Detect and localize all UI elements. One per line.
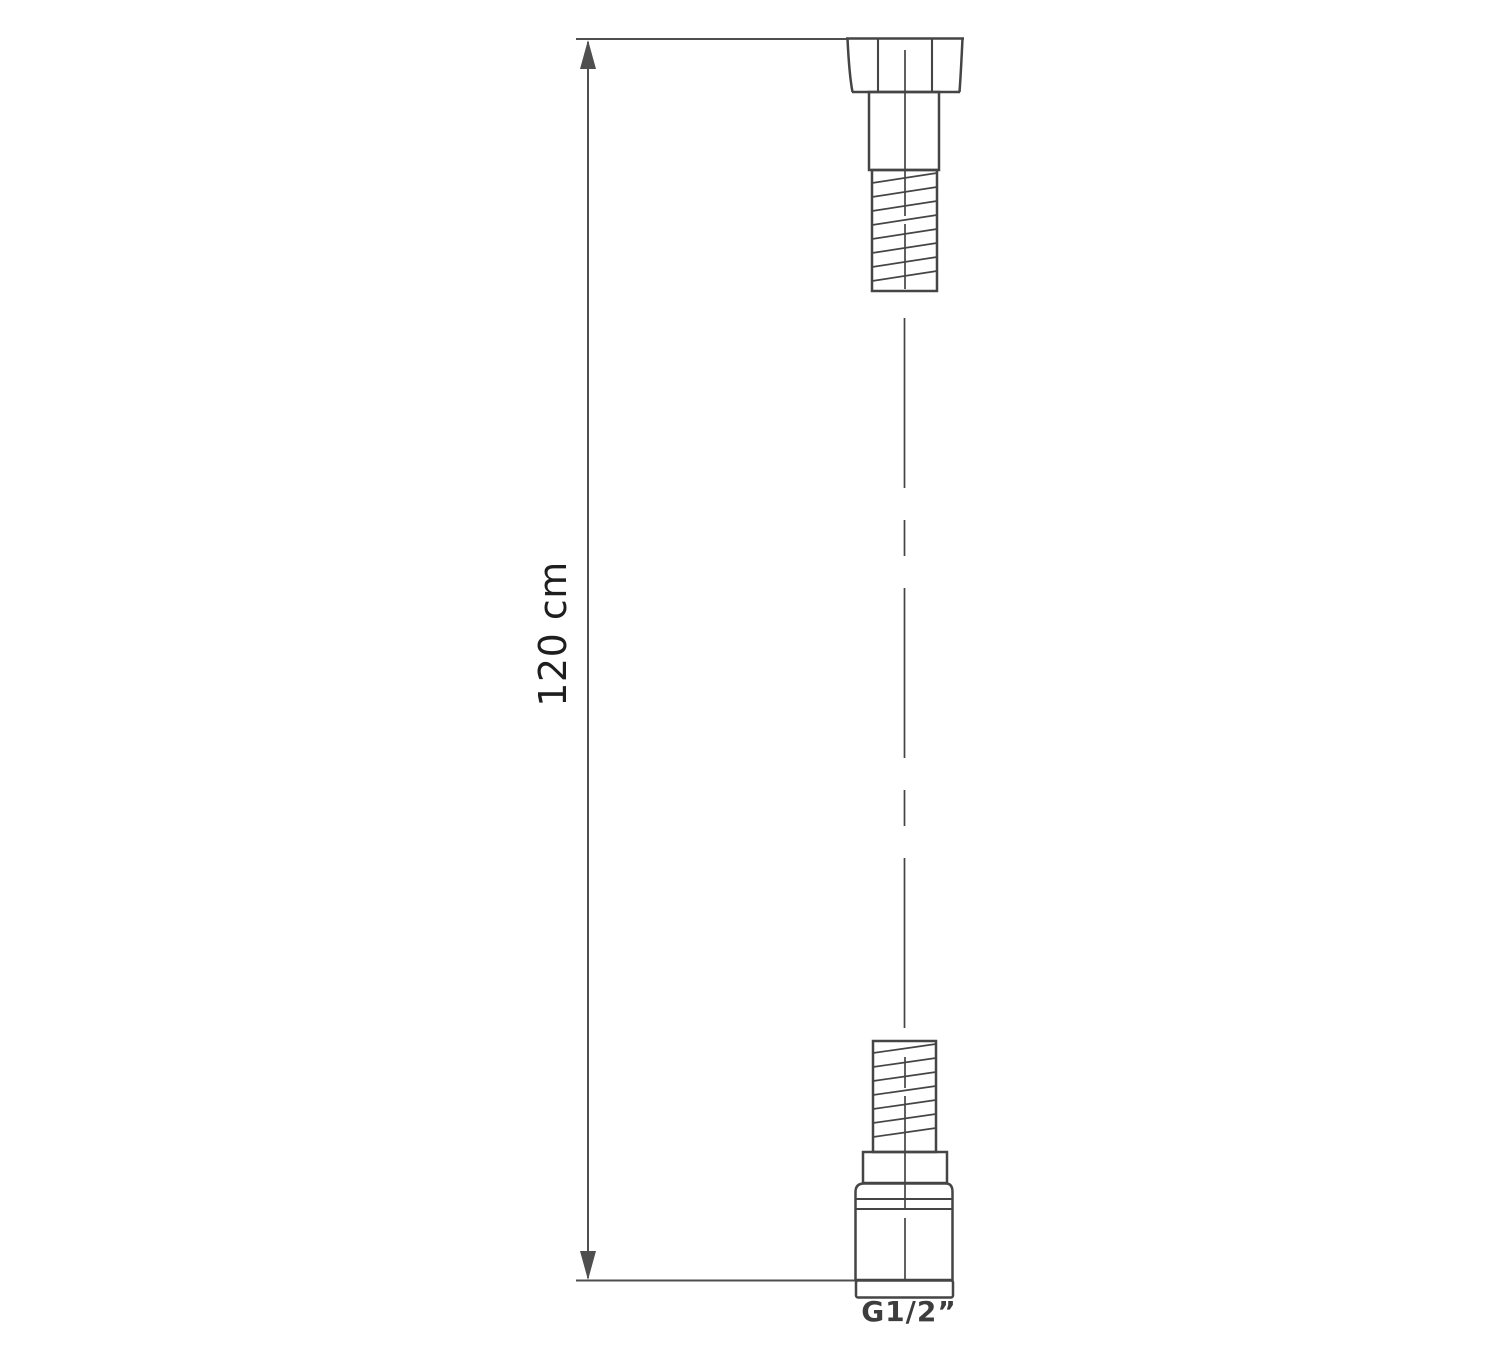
- dimension-indicator: 120 cm: [531, 39, 856, 1281]
- dimension-arrow-up-icon: [580, 40, 596, 69]
- dimension-arrow-down-icon: [580, 1251, 596, 1280]
- bottom-hose-fitting: G1/2”: [856, 1041, 957, 1328]
- shower-hose-diagram: 120 cm: [0, 0, 1500, 1365]
- fitting-shank: [869, 92, 939, 170]
- technical-drawing-page: 120 cm: [0, 0, 1500, 1365]
- dimension-label: 120 cm: [531, 561, 575, 707]
- body-detail-lines: [856, 1199, 953, 1209]
- top-hose-fitting: [846, 39, 964, 292]
- thread-size-label: G1/2”: [861, 1295, 957, 1328]
